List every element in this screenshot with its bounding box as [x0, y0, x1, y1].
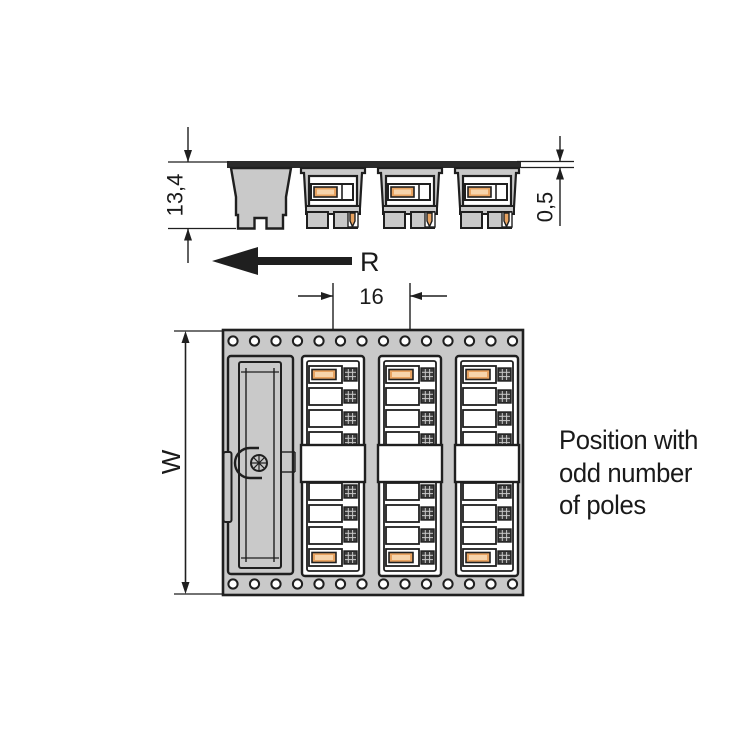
arrowhead-down-icon: [182, 582, 190, 594]
dimension-height: 13,4: [163, 127, 236, 263]
arrowhead-up-icon: [556, 168, 564, 180]
arrowhead-down-icon: [556, 150, 564, 162]
arrowhead-left-icon: [410, 292, 422, 300]
tape-top-view: [223, 330, 523, 595]
side-view: [227, 161, 521, 229]
empty-pocket-side-view: [231, 168, 291, 229]
arrowhead-down-icon: [184, 150, 192, 162]
arrowhead-up-icon: [184, 229, 192, 241]
dimension-thickness-label: 0,5: [533, 192, 558, 223]
annotation-line-3: of poles: [559, 489, 740, 522]
annotation-line-1: Position with: [559, 424, 740, 457]
arrowhead-up-icon: [182, 331, 190, 343]
arrowhead-right-icon: [321, 292, 333, 300]
dimension-width-label: W: [156, 449, 186, 474]
direction-arrow-icon: [212, 247, 258, 275]
annotation-line-2: odd number: [559, 457, 740, 490]
dimension-pitch-label: 16: [359, 284, 383, 309]
dimension-height-label: 13,4: [163, 174, 188, 217]
unreeling-direction: R: [212, 247, 380, 277]
dimension-tape-thickness: 0,5: [517, 136, 574, 226]
connector-tape-drawing: 13,4 0,5 R 16: [0, 0, 750, 750]
pocket-side-tab: [224, 452, 232, 522]
dimension-tape-width: W: [156, 331, 222, 594]
direction-label: R: [360, 247, 380, 277]
technical-drawing-page: 13,4 0,5 R 16: [0, 0, 750, 750]
annotation-position-note: Position with odd number of poles: [559, 424, 740, 522]
